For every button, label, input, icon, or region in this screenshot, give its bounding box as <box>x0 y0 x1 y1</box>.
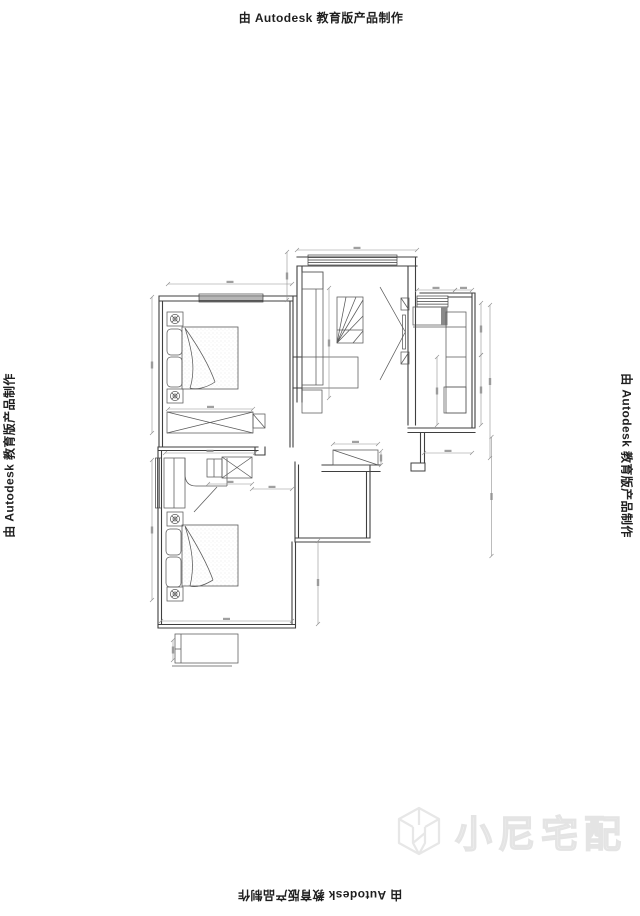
brand-cube-icon <box>393 803 445 859</box>
sideboard-cabinet <box>413 307 447 327</box>
door-swing-icon <box>380 287 409 380</box>
bedroom1-furniture <box>167 312 265 433</box>
double-bed-icon <box>167 327 238 389</box>
tv-icon <box>337 297 363 343</box>
brand-name: 小尼宅配 <box>455 804 627 858</box>
bedroom2-furniture <box>164 457 252 666</box>
wardrobe-icon <box>167 412 265 433</box>
drawing-sheet: 由 Autodesk 教育版产品制作 由 Autodesk 教育版产品制作 由 … <box>0 0 640 916</box>
lamp-icon <box>167 512 183 526</box>
cabinet-column <box>302 272 323 385</box>
sofa-icon <box>444 312 466 413</box>
wall-stub <box>411 463 425 471</box>
floor-plan-canvas <box>0 0 640 916</box>
living-furniture <box>302 272 409 413</box>
brand-watermark: 小尼宅配 <box>393 803 627 859</box>
desk-icon <box>172 634 238 666</box>
window-dining <box>417 296 448 307</box>
lamp-icon <box>167 587 183 601</box>
lamp-icon <box>167 389 183 403</box>
wardrobe-icon <box>207 457 252 478</box>
shoe-cabinet-icon <box>333 450 378 465</box>
double-bed-icon <box>166 525 238 587</box>
hall-furniture <box>333 450 378 465</box>
closet-counter <box>164 458 227 512</box>
dining-furniture <box>413 307 466 413</box>
lamp-icon <box>167 312 183 326</box>
